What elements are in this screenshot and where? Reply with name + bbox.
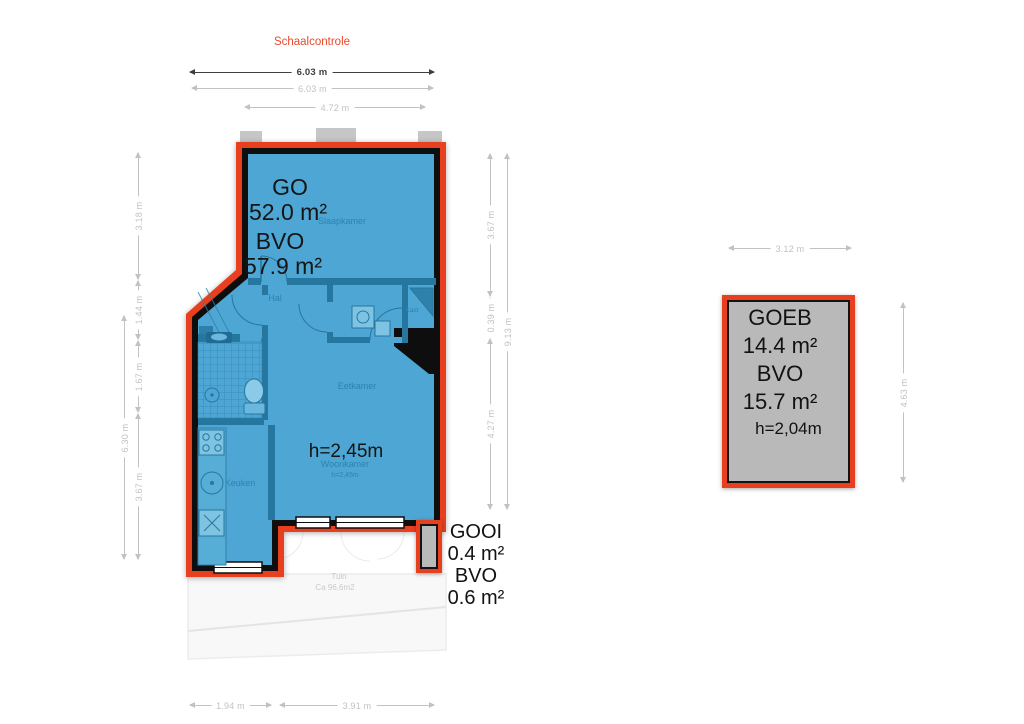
gooi-bvo-value: 0.6 m²	[438, 587, 514, 609]
dim-arrow-up-icon	[900, 302, 906, 308]
dim-label: 0.39 m	[485, 298, 497, 337]
dim-label: 3.67 m	[485, 206, 497, 245]
dim-label: 3.18 m	[133, 197, 145, 236]
washing-machine-icon	[352, 306, 374, 328]
stove-icon	[199, 430, 224, 455]
room-label-hal: Hal	[268, 293, 282, 303]
washbasin-bowl	[211, 334, 227, 341]
room-label-eetkamer: Eetkamer	[338, 381, 377, 391]
room-label-kast: Kast	[405, 307, 418, 314]
shower-drain-center	[210, 393, 213, 396]
dim-label: 3.12 m	[771, 243, 810, 255]
goeb-ceiling-height: h=2,04m	[727, 419, 850, 439]
dim-arrow-right-icon	[846, 245, 852, 251]
dim-label: 4.27 m	[485, 405, 497, 444]
dim-arrow-down-icon	[487, 504, 493, 510]
dim-right-top: 3.67 m	[484, 153, 497, 297]
dim-arrow-left-icon	[728, 245, 734, 251]
dim-left-outer: 6.30 m	[118, 315, 131, 560]
dim-arrow-down-icon	[900, 477, 906, 483]
dim-label: 6.30 m	[119, 418, 131, 457]
floorplan-page: { "colors": { "outline_red": "#e8401f", …	[0, 0, 1024, 724]
garden-name-label: Tuin	[331, 572, 346, 581]
door-opening	[240, 334, 262, 342]
dim-arrow-up-icon	[487, 338, 493, 344]
dim-label: 3.67 m	[133, 467, 145, 506]
dim-label: 1.67 m	[133, 357, 145, 396]
door-opening	[262, 295, 268, 325]
dim-left-bottom: 3.67 m	[132, 413, 145, 560]
dim-arrow-down-icon	[135, 554, 141, 560]
room-label-keuken: Keuken	[225, 478, 256, 488]
goeb-bvo-label: BVO	[729, 360, 831, 388]
room-label-woonkamer-height: h=2,45m	[331, 472, 359, 479]
go-label: GO	[272, 174, 308, 200]
bathroom-bottom-wall	[198, 418, 264, 425]
goeb-annex-box: GOEB 14.4 m² BVO 15.7 m² h=2,04m	[722, 295, 855, 488]
toilet-tank-icon	[244, 403, 265, 414]
dim-bottom-left: 1.94 m	[189, 699, 272, 712]
dryer-icon	[375, 321, 390, 336]
dim-arrow-down-icon	[504, 504, 510, 510]
dim-label: 1.44 m	[133, 291, 145, 330]
dim-left-mid1: 1.44 m	[132, 280, 145, 340]
dim-left-mid2: 1.67 m	[132, 340, 145, 413]
dim-label: 9.13 m	[502, 312, 514, 351]
dim-arrow-left-icon	[279, 702, 285, 708]
kitchen-right-wall	[268, 425, 275, 520]
bvo-label: BVO	[256, 228, 305, 254]
dim-arrow-up-icon	[487, 153, 493, 159]
goeb-go-value: 14.4 m²	[729, 332, 831, 360]
dim-label: 3.91 m	[338, 700, 377, 712]
gooi-labels: GOOI 0.4 m² BVO 0.6 m²	[438, 521, 514, 609]
door-opening	[327, 302, 333, 332]
window	[336, 517, 404, 528]
bathroom	[198, 332, 265, 418]
dim-arrow-down-icon	[121, 554, 127, 560]
door-opening	[370, 337, 402, 343]
goeb-bvo-value: 15.7 m²	[729, 388, 831, 416]
dim-bottom-right: 3.91 m	[279, 699, 435, 712]
dim-arrow-up-icon	[135, 413, 141, 419]
bvo-value: 57.9 m²	[244, 253, 322, 279]
goeb-name: GOEB	[729, 304, 831, 332]
go-value: 52.0 m²	[249, 199, 327, 225]
dim-left-top: 3.18 m	[132, 152, 145, 280]
window	[296, 517, 330, 528]
dim-arrow-up-icon	[504, 153, 510, 159]
closet-wall	[402, 285, 408, 343]
kitchen	[198, 428, 226, 565]
dim-arrow-up-icon	[121, 315, 127, 321]
dim-label: 1.94 m	[211, 700, 250, 712]
dim-right-bottom: 4.27 m	[484, 338, 497, 510]
gooi-go-value: 0.4 m²	[438, 543, 514, 565]
dim-arrow-up-icon	[135, 280, 141, 286]
goeb-labels: GOEB 14.4 m² BVO 15.7 m²	[729, 304, 831, 416]
toilet-bowl-icon	[245, 379, 264, 403]
dim-arrow-right-icon	[429, 702, 435, 708]
gooi-name: GOOI	[438, 521, 514, 543]
dim-arrow-right-icon	[266, 702, 272, 708]
room-label-slaapkamer: Slaapkamer	[318, 216, 366, 226]
dim-arrow-up-icon	[135, 152, 141, 158]
dim-arrow-up-icon	[135, 340, 141, 346]
dim-label: 4.63 m	[898, 373, 910, 412]
gooi-annex-inner-wall	[420, 524, 438, 569]
door-opening	[261, 278, 287, 285]
kitchen-sink-drain	[210, 481, 214, 485]
garden-area-label: Ca 96,6m2	[315, 583, 355, 592]
gooi-bvo-label: BVO	[438, 565, 514, 587]
dim-goeb-right: 4.63 m	[897, 302, 910, 483]
garden-door-swing-arcs	[276, 532, 404, 561]
dim-right-mid: 0.39 m	[484, 297, 497, 338]
dim-goeb-top: 3.12 m	[728, 242, 852, 255]
room-label-woonkamer: Woonkamer	[321, 459, 369, 469]
dim-right-outer: 9.13 m	[501, 153, 514, 510]
dim-arrow-left-icon	[189, 702, 195, 708]
